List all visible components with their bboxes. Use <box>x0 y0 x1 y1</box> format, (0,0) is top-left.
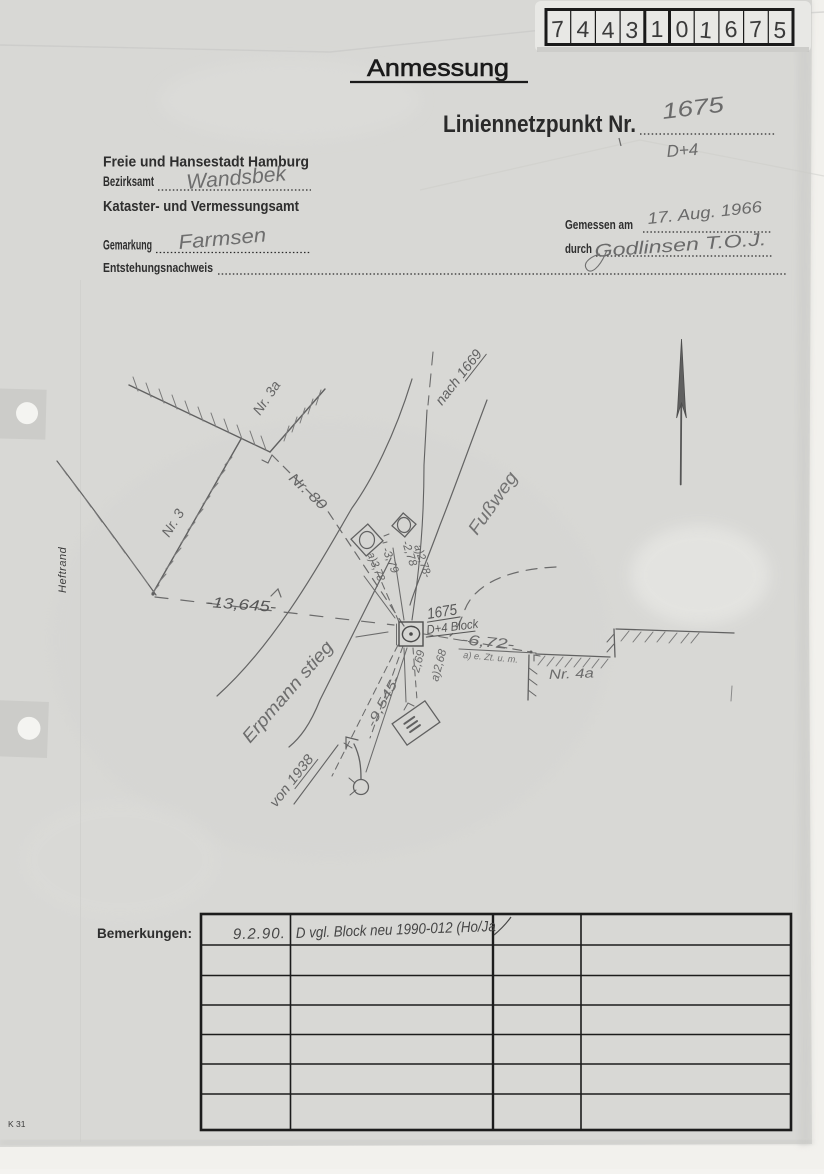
svg-text:Anmessung: Anmessung <box>367 55 509 82</box>
svg-text:4: 4 <box>601 17 615 43</box>
svg-text:1: 1 <box>698 16 713 43</box>
svg-text:3: 3 <box>625 17 640 44</box>
svg-text:K 31: K 31 <box>8 1119 26 1129</box>
svg-text:9.2.90.: 9.2.90. <box>233 925 286 943</box>
svg-text:Bemerkungen:: Bemerkungen: <box>97 926 192 941</box>
svg-text:1: 1 <box>651 16 664 42</box>
svg-text:7: 7 <box>551 16 566 43</box>
svg-text:4: 4 <box>576 16 590 43</box>
svg-text:0: 0 <box>675 16 689 43</box>
svg-text:Liniennetzpunkt Nr.: Liniennetzpunkt Nr. <box>443 111 636 138</box>
svg-text:durch: durch <box>565 241 592 256</box>
svg-text:Kataster- und Vermessungsamt: Kataster- und Vermessungsamt <box>103 198 299 215</box>
svg-text:Entstehungsnachweis: Entstehungsnachweis <box>103 260 213 275</box>
svg-text:Bezirksamt: Bezirksamt <box>103 173 154 189</box>
svg-text:Gemarkung: Gemarkung <box>103 237 152 253</box>
svg-text:D+4: D+4 <box>666 140 699 161</box>
svg-text:Nr. 4a: Nr. 4a <box>549 665 595 682</box>
svg-text:Gemessen am: Gemessen am <box>565 217 633 232</box>
svg-text:6: 6 <box>724 16 738 43</box>
svg-text:Heftrand: Heftrand <box>57 546 69 593</box>
svg-text:5: 5 <box>773 17 787 44</box>
svg-text:7: 7 <box>749 16 764 43</box>
